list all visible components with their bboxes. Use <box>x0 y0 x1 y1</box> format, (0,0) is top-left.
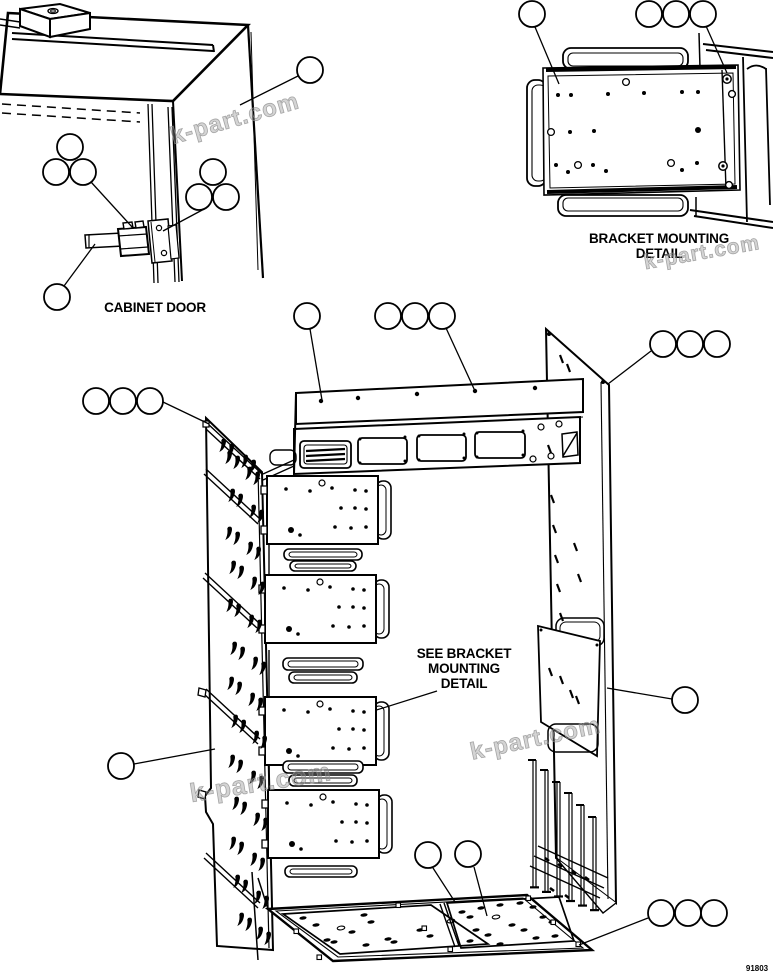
bracket-hole <box>362 746 366 750</box>
plate-hole <box>568 130 572 134</box>
bracket-hole <box>309 803 313 807</box>
top-beam <box>263 379 583 480</box>
slide-rail-loop <box>289 672 357 683</box>
see-bracket-note-line1: SEE BRACKET <box>417 646 513 661</box>
callout-balloon <box>701 900 727 926</box>
callout-balloon <box>704 331 730 357</box>
bracket-hole <box>362 710 366 714</box>
bracket-hole <box>362 588 366 592</box>
leader-line <box>91 182 133 228</box>
plate-hole <box>591 163 595 167</box>
plate-hole <box>695 161 699 165</box>
bracket-hole <box>339 506 343 510</box>
plate-hole <box>680 168 684 172</box>
bracket-hole <box>286 748 292 754</box>
beam-hole <box>556 421 562 427</box>
bracket-hole <box>340 820 344 824</box>
bracket-hole <box>364 525 368 529</box>
floor-edge-clip <box>422 926 427 931</box>
diagram-page: CABINET DOOR BRACKET MOUNTING DETAIL SEE… <box>0 0 773 980</box>
plate-hole <box>569 93 573 97</box>
floor-edge-clip <box>448 947 453 952</box>
watermark-top-left: k-part.com <box>167 88 302 151</box>
bracket-hole <box>337 727 341 731</box>
bracket-hole <box>282 708 286 712</box>
bracket-hole <box>362 624 366 628</box>
labels-layer: CABINET DOOR BRACKET MOUNTING DETAIL SEE… <box>104 88 769 973</box>
leader-line <box>433 868 455 902</box>
bracket-hole <box>331 746 335 750</box>
bracket-hole <box>282 586 286 590</box>
bracket-hole <box>353 506 357 510</box>
callout-group <box>375 303 475 391</box>
plate-hole <box>642 91 646 95</box>
bracket-hole <box>328 707 332 711</box>
callout-balloon <box>44 284 70 310</box>
slide-rail-loop <box>290 561 356 571</box>
beam-rivet <box>533 386 537 390</box>
bracket-hole <box>331 624 335 628</box>
callout-group <box>294 303 322 400</box>
bracket-hole <box>365 803 369 807</box>
callout-group <box>415 842 455 902</box>
bracket-hole <box>364 507 368 511</box>
bracket-hole <box>333 525 337 529</box>
bracket-mounting-detail <box>527 33 773 228</box>
bracket-hole <box>354 820 358 824</box>
bracket-hole <box>365 839 369 843</box>
beam-hole <box>548 453 554 459</box>
bracket-hole <box>298 533 302 537</box>
bracket-hole <box>334 839 338 843</box>
bracket-hole <box>288 527 294 533</box>
callout-balloon <box>108 753 134 779</box>
bracket-hole <box>317 701 323 707</box>
plate-hole <box>668 160 675 167</box>
plate-hole <box>548 129 555 136</box>
slide-rail-loop <box>284 549 362 560</box>
callout-group <box>636 1 727 73</box>
leader-line <box>134 749 215 764</box>
bracket-hole <box>347 747 351 751</box>
bracket-hole <box>349 526 353 530</box>
bracket-hole <box>296 754 300 758</box>
beam-rivet <box>415 392 419 396</box>
bracket-hole <box>354 802 358 806</box>
leader-line <box>579 918 648 945</box>
callout-group <box>44 244 95 310</box>
floor-edge-clip <box>551 920 556 925</box>
plate-hole <box>680 90 684 94</box>
bracket-hole <box>328 585 332 589</box>
callout-balloon <box>519 1 545 27</box>
bracket-hole <box>286 626 292 632</box>
bracket-hole <box>351 605 355 609</box>
callout-group <box>608 331 730 384</box>
plate-hole <box>695 127 701 133</box>
bracket-plate <box>543 65 740 195</box>
floor-edge-clip <box>317 955 322 960</box>
callout-balloon <box>672 687 698 713</box>
leader-line <box>163 402 209 424</box>
bracket-hole <box>285 801 289 805</box>
floor-edge-clip <box>396 903 401 908</box>
callout-balloon <box>675 900 701 926</box>
callout-balloon <box>636 1 662 27</box>
callout-balloon <box>57 134 83 160</box>
bracket-hole <box>306 710 310 714</box>
beam-hole <box>538 424 544 430</box>
callout-balloon <box>650 331 676 357</box>
plate-hole <box>696 90 700 94</box>
bracket-hole <box>365 821 369 825</box>
leader-line <box>607 688 672 699</box>
floor-edge-clip <box>294 929 299 934</box>
leader-line <box>163 208 206 231</box>
callout-balloon <box>213 184 239 210</box>
leader-line <box>310 329 322 400</box>
bracket-hole <box>319 480 325 486</box>
callout-balloon <box>294 303 320 329</box>
bracket-hole <box>317 579 323 585</box>
callout-balloon <box>186 184 212 210</box>
callout-balloon <box>429 303 455 329</box>
note-leader-line <box>367 691 437 713</box>
bracket-hole <box>351 727 355 731</box>
callout-balloon <box>677 331 703 357</box>
callout-balloon <box>200 159 226 185</box>
callout-balloon <box>297 57 323 83</box>
callout-balloon <box>455 841 481 867</box>
callout-group <box>108 749 215 779</box>
cabinet-side-edge <box>248 25 263 278</box>
callout-balloon <box>375 303 401 329</box>
see-bracket-note-line3: DETAIL <box>441 676 488 691</box>
callout-balloon <box>402 303 428 329</box>
slide-rail-loop <box>283 658 363 670</box>
callout-balloon <box>83 388 109 414</box>
plate-hole <box>604 169 608 173</box>
leader-line <box>608 351 651 384</box>
plate-hole <box>566 170 570 174</box>
bracket-hole <box>351 587 355 591</box>
callout-balloon <box>690 1 716 27</box>
callout-balloon <box>70 159 96 185</box>
bracket-hole <box>364 489 368 493</box>
bracket-hole <box>362 606 366 610</box>
plate-hole <box>592 129 596 133</box>
bracket-hole <box>296 632 300 636</box>
callout-balloon <box>415 842 441 868</box>
plate-hole <box>554 163 558 167</box>
plate-hole <box>575 162 582 169</box>
cabinet-door-detail <box>0 4 263 283</box>
latch-body <box>118 227 149 256</box>
bracket-hole <box>347 625 351 629</box>
bracket-hole <box>284 487 288 491</box>
leader-line <box>446 328 475 391</box>
drawing-number: 91803 <box>746 964 769 973</box>
callout-balloon <box>110 388 136 414</box>
plate-hole <box>623 79 630 86</box>
bracket-hole <box>351 709 355 713</box>
bracket-hole <box>289 841 295 847</box>
bracket-hole <box>331 800 335 804</box>
plate-hole <box>606 92 610 96</box>
latch-handle <box>85 233 123 248</box>
bracket-hole <box>350 840 354 844</box>
door-latch <box>85 219 179 263</box>
bracket-hole <box>353 488 357 492</box>
bracket-hole <box>337 605 341 609</box>
front-face-lines <box>2 104 140 122</box>
floor-edge-clip <box>526 896 531 901</box>
callout-balloon <box>648 900 674 926</box>
bracket-hole <box>299 847 303 851</box>
callout-group <box>607 687 698 713</box>
callout-group <box>43 134 133 228</box>
plate-hole <box>556 93 560 97</box>
exploded-parts-diagram: CABINET DOOR BRACKET MOUNTING DETAIL SEE… <box>0 0 773 980</box>
callout-balloon <box>137 388 163 414</box>
bracket-hole <box>330 486 334 490</box>
callout-balloon <box>43 159 69 185</box>
bracket-hole <box>362 728 366 732</box>
bracket-hole <box>306 588 310 592</box>
callout-balloon <box>663 1 689 27</box>
beam-hole <box>530 456 536 462</box>
bracket-hole <box>308 489 312 493</box>
callout-group <box>83 388 209 424</box>
beam-rivet <box>356 396 360 400</box>
see-bracket-note-line2: MOUNTING <box>428 661 500 676</box>
leader-line <box>64 244 95 286</box>
left-panel <box>198 418 273 950</box>
bracket-hole <box>320 794 326 800</box>
cabinet-door-label: CABINET DOOR <box>104 300 206 315</box>
slide-rail-loop <box>285 866 357 877</box>
